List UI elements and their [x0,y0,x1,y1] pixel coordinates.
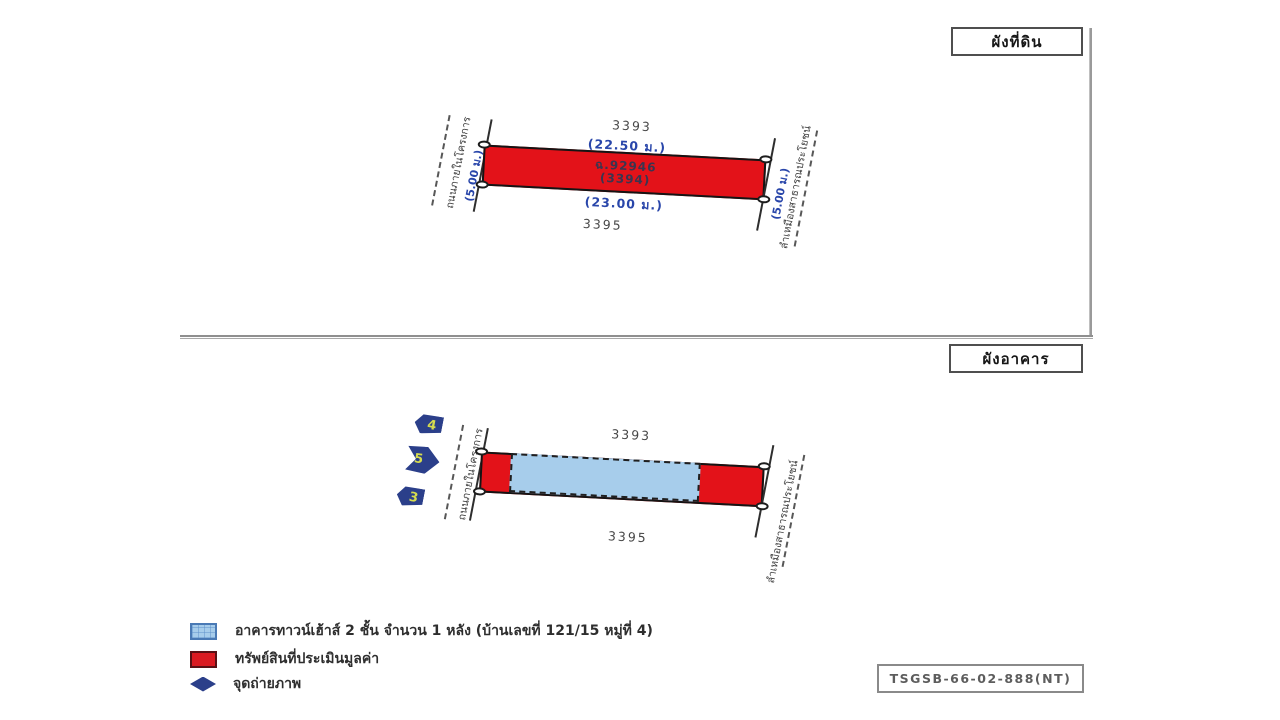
north-parcel-number: 3393 [582,116,683,136]
corner-marker [757,195,770,204]
corner-marker [755,502,768,511]
reference-code-box: TSGSB-66-02-888(NT) [877,664,1084,693]
photo-point-marker-3: 3 [395,484,425,509]
south-parcel-number: 3395 [578,527,679,547]
appraised-land-parcel [479,451,765,507]
legend-label: ทรัพย์สินที่ประเมินมูลค่า [235,648,379,670]
townhouse-building-footprint [509,453,701,502]
legend-label: อาคารทาวน์เฮ้าส์ 2 ชั้น จำนวน 1 หลัง (บ้… [235,620,653,642]
corner-marker [475,180,488,189]
photo-point-number: 5 [413,451,424,467]
land-plan-title: ผังที่ดิน [992,30,1043,54]
legend-item-appraised: ทรัพย์สินที่ประเมินมูลค่า [190,648,379,670]
north-parcel-number: 3393 [581,425,682,445]
townhouse-swatch [190,623,217,640]
land-plan-diagram: 3393 ถนนภายในโครงการ (5.00 ม.) (5.00 ม.)… [422,102,829,263]
photo-point-number: 3 [408,489,420,505]
section-divider [180,335,1093,339]
building-plan-title-box: ผังอาคาร [949,344,1083,373]
reference-code: TSGSB-66-02-888(NT) [890,671,1072,686]
appraised-property-swatch [190,651,217,668]
right-border-rule [1089,28,1092,338]
south-parcel-number: 3395 [552,214,653,234]
photo-point-icon [190,677,216,692]
legend-item-townhouse: อาคารทาวน์เฮ้าส์ 2 ชั้น จำนวน 1 หลัง (บ้… [190,620,653,642]
photo-point-number: 4 [426,417,438,433]
corner-marker [473,487,486,496]
legend-item-photo-point: จุดถ่ายภาพ [190,673,301,695]
land-plan-title-box: ผังที่ดิน [951,27,1083,56]
building-plan-title: ผังอาคาร [982,347,1049,371]
legend-label: จุดถ่ายภาพ [233,673,301,695]
photo-point-marker-4: 4 [413,412,444,437]
photo-point-marker-5: 5 [405,444,441,475]
building-plan-diagram: 3393 4 5 3 ถนนภายในโครงการ ลำเหมืองสาธาร… [391,409,818,581]
